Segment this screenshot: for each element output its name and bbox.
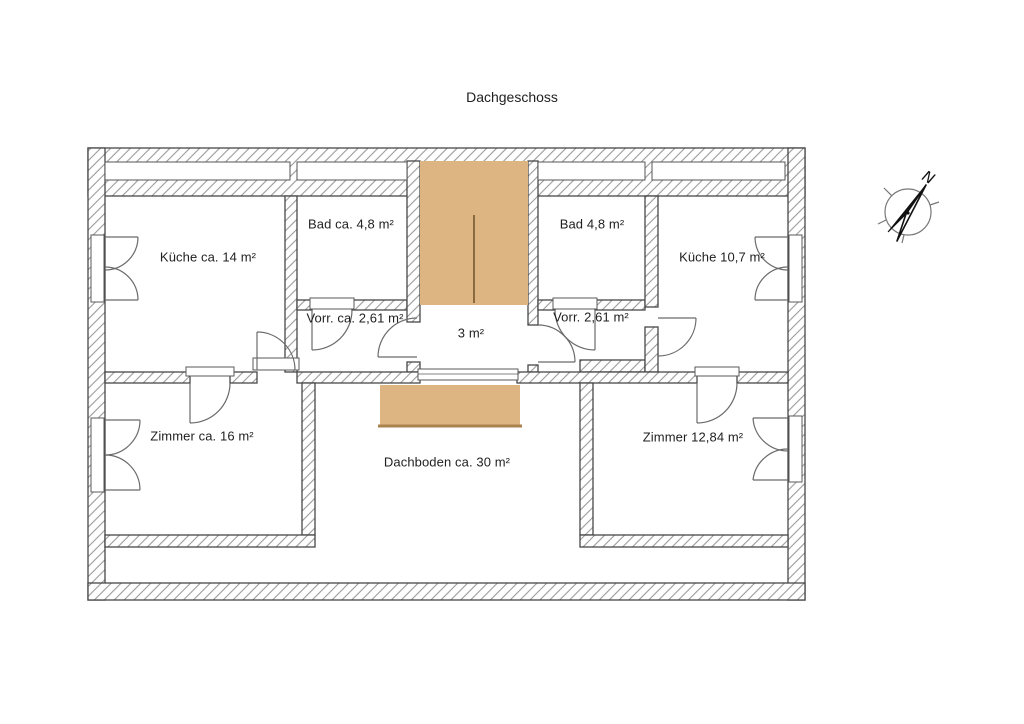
room-label-zimmer-rechts: Zimmer 12,84 m² bbox=[643, 430, 743, 445]
door-vorraum-rechts-flur bbox=[538, 325, 575, 362]
room-label-zimmer-links: Zimmer ca. 16 m² bbox=[150, 429, 253, 444]
double-door-kueche-links bbox=[91, 235, 138, 302]
staircase bbox=[420, 161, 528, 305]
room-label-flur: 3 m² bbox=[458, 326, 484, 341]
room-label-bad-rechts: Bad 4,8 m² bbox=[560, 217, 625, 232]
floor-plan-page: N Dachgeschoss Küche ca. 14 m² Bad ca. 4… bbox=[0, 0, 1024, 724]
double-door-zimmer-rechts bbox=[753, 416, 802, 482]
page-title: Dachgeschoss bbox=[466, 89, 558, 105]
compass-north-icon: N bbox=[878, 167, 939, 243]
floor-plan-drawing: N bbox=[0, 0, 1024, 724]
room-label-kueche-links: Küche ca. 14 m² bbox=[160, 250, 256, 265]
room-label-vorraum-rechts: Vorr. 2,61 m² bbox=[553, 310, 629, 325]
room-label-dachboden: Dachboden ca. 30 m² bbox=[384, 455, 510, 470]
door-kueche-rechts bbox=[658, 318, 696, 356]
door-zimmer-rechts bbox=[697, 383, 737, 423]
room-label-vorraum-links: Vorr. ca. 2,61 m² bbox=[306, 311, 403, 326]
room-label-kueche-rechts: Küche 10,7 m² bbox=[679, 250, 765, 265]
room-label-bad-links: Bad ca. 4,8 m² bbox=[308, 217, 394, 232]
double-door-zimmer-links bbox=[91, 418, 140, 492]
door-zimmer-links bbox=[190, 383, 230, 423]
compass-north-label: N bbox=[919, 167, 938, 188]
staircase-dachboden bbox=[378, 385, 522, 426]
double-door-kueche-rechts bbox=[755, 235, 802, 302]
